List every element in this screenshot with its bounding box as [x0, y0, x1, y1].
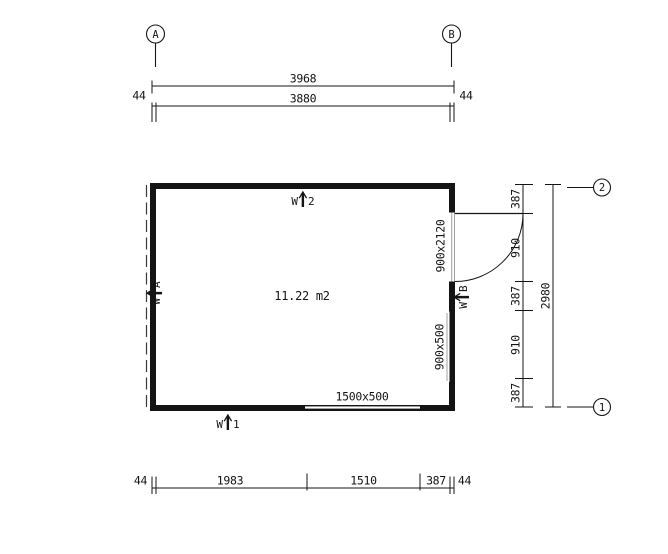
window-bottom-inner-line: [305, 409, 420, 411]
dim-right-overall: 2980: [540, 282, 552, 309]
left-arrow-icon: [146, 289, 162, 298]
dim-right-seg-1: 387: [510, 189, 522, 209]
left-arrow-icon: [453, 293, 469, 302]
dim-right-seg-3: 387: [510, 286, 522, 306]
dim-right-seg-5: 387: [510, 383, 522, 403]
wall-bottom-left: [150, 405, 305, 411]
wall-marker-w2: W 2: [291, 191, 314, 207]
dim-top-inner: 3880: [290, 93, 317, 105]
wall-marker-wb: W B: [453, 285, 469, 308]
marker-wa-prefix: W: [152, 298, 162, 305]
axis-b-label: B: [448, 29, 454, 40]
dim-top-wall-right: 44: [459, 90, 472, 102]
axis-2-label: 2: [599, 183, 605, 194]
axis-1-label: 1: [599, 402, 605, 413]
door-size-label: 900x2120: [435, 220, 447, 273]
window-bottom-outer-line: [305, 405, 420, 406]
dim-bottom-wall-left: 44: [134, 475, 147, 487]
wall-marker-w1: W 1: [216, 414, 239, 430]
marker-wa-suffix: A: [152, 281, 162, 288]
wall-right-lower: [449, 382, 455, 411]
wall-right-upper: [449, 183, 455, 213]
dim-right-seg-2: 910: [510, 238, 522, 258]
up-arrow-icon: [224, 414, 233, 430]
room-area-label: 11.22 m2: [274, 290, 329, 302]
wall-marker-wa: W A: [146, 281, 162, 304]
dim-bottom-seg-3: 387: [426, 475, 446, 487]
window-right-label: 900x500: [434, 323, 446, 369]
wall-top: [150, 183, 455, 189]
marker-w2-prefix: W: [291, 197, 298, 207]
dim-bottom-seg-2: 1510: [350, 475, 377, 487]
grid-axes: [147, 25, 611, 416]
marker-w1-suffix: 1: [233, 420, 240, 430]
dim-right-seg-4: 910: [510, 335, 522, 355]
axis-a-label: A: [152, 29, 158, 40]
up-arrow-icon: [299, 191, 308, 207]
plan-linework: [0, 0, 668, 554]
dim-top-overall: 3968: [290, 73, 317, 85]
marker-wb-suffix: B: [459, 285, 469, 292]
dim-bottom-wall-right: 44: [458, 475, 471, 487]
marker-w2-suffix: 2: [308, 197, 315, 207]
window-bottom-label: 1500x500: [336, 391, 389, 403]
floor-plan-drawing: A B 2 1 3968 3880 44 44 44 1983 1510 387…: [0, 0, 668, 554]
dim-top-wall-left: 44: [132, 90, 145, 102]
dimension-lines: [152, 81, 561, 495]
window-right-bar: [450, 312, 456, 383]
dim-bottom-seg-1: 1983: [217, 475, 244, 487]
marker-wb-prefix: W: [459, 302, 469, 309]
marker-w1-prefix: W: [216, 420, 223, 430]
